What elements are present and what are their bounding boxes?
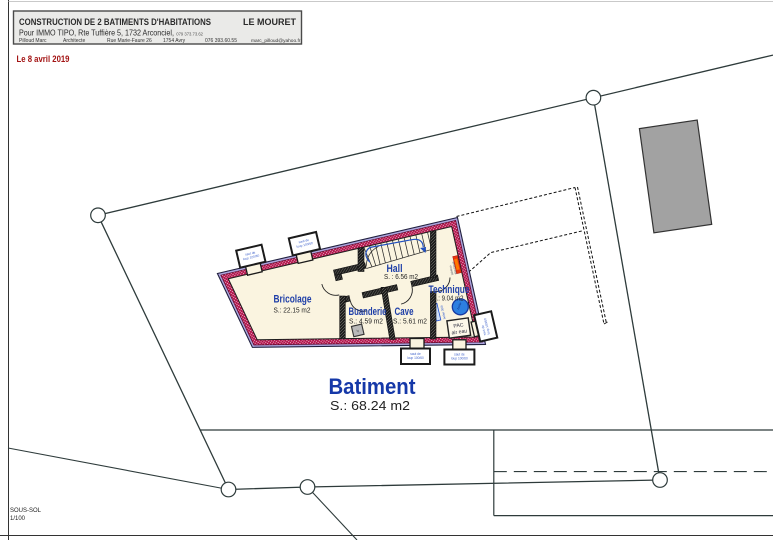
svg-text:S.: 5.61 m2: S.: 5.61 m2 <box>393 317 427 326</box>
svg-text:loup 100/60: loup 100/60 <box>407 356 424 360</box>
svg-text:SOUS-SOL: SOUS-SOL <box>10 508 42 514</box>
svg-text:Bricolage: Bricolage <box>274 294 312 306</box>
svg-text:Pour IMMO TIPO, Rte Tuffière 5: Pour IMMO TIPO, Rte Tuffière 5, 1732 Arc… <box>19 29 204 38</box>
svg-text:Le 8 avril 2019: Le 8 avril 2019 <box>17 54 70 65</box>
svg-text:marc_pilloud@yahoo.fr: marc_pilloud@yahoo.fr <box>251 38 301 44</box>
svg-text:S.: 22.15 m2: S.: 22.15 m2 <box>274 306 311 315</box>
svg-text:Batiment: Batiment <box>329 374 417 399</box>
svg-text:S.: 9.04 m2: S.: 9.04 m2 <box>433 294 464 303</box>
svg-text:CONSTRUCTION DE 2 BATIMENTS D': CONSTRUCTION DE 2 BATIMENTS D'HABITATION… <box>19 17 211 28</box>
svg-text:076 393.60.55: 076 393.60.55 <box>205 38 237 44</box>
svg-text:1/100: 1/100 <box>10 516 26 522</box>
svg-text:LE MOURET: LE MOURET <box>243 17 296 28</box>
svg-text:Rue Marie-Faure 26: Rue Marie-Faure 26 <box>107 38 152 44</box>
svg-text:S.: 4.59 m2: S.: 4.59 m2 <box>349 317 383 326</box>
svg-text:Pilloud Marc: Pilloud Marc <box>19 38 47 44</box>
svg-text:1754 Avry: 1754 Avry <box>163 38 186 44</box>
svg-text:Architecte: Architecte <box>63 38 85 44</box>
svg-text:S. : 6.56 m2: S. : 6.56 m2 <box>384 272 418 281</box>
svg-text:S.: 68.24 m2: S.: 68.24 m2 <box>330 398 410 413</box>
svg-text:loup 100/60: loup 100/60 <box>451 357 468 361</box>
